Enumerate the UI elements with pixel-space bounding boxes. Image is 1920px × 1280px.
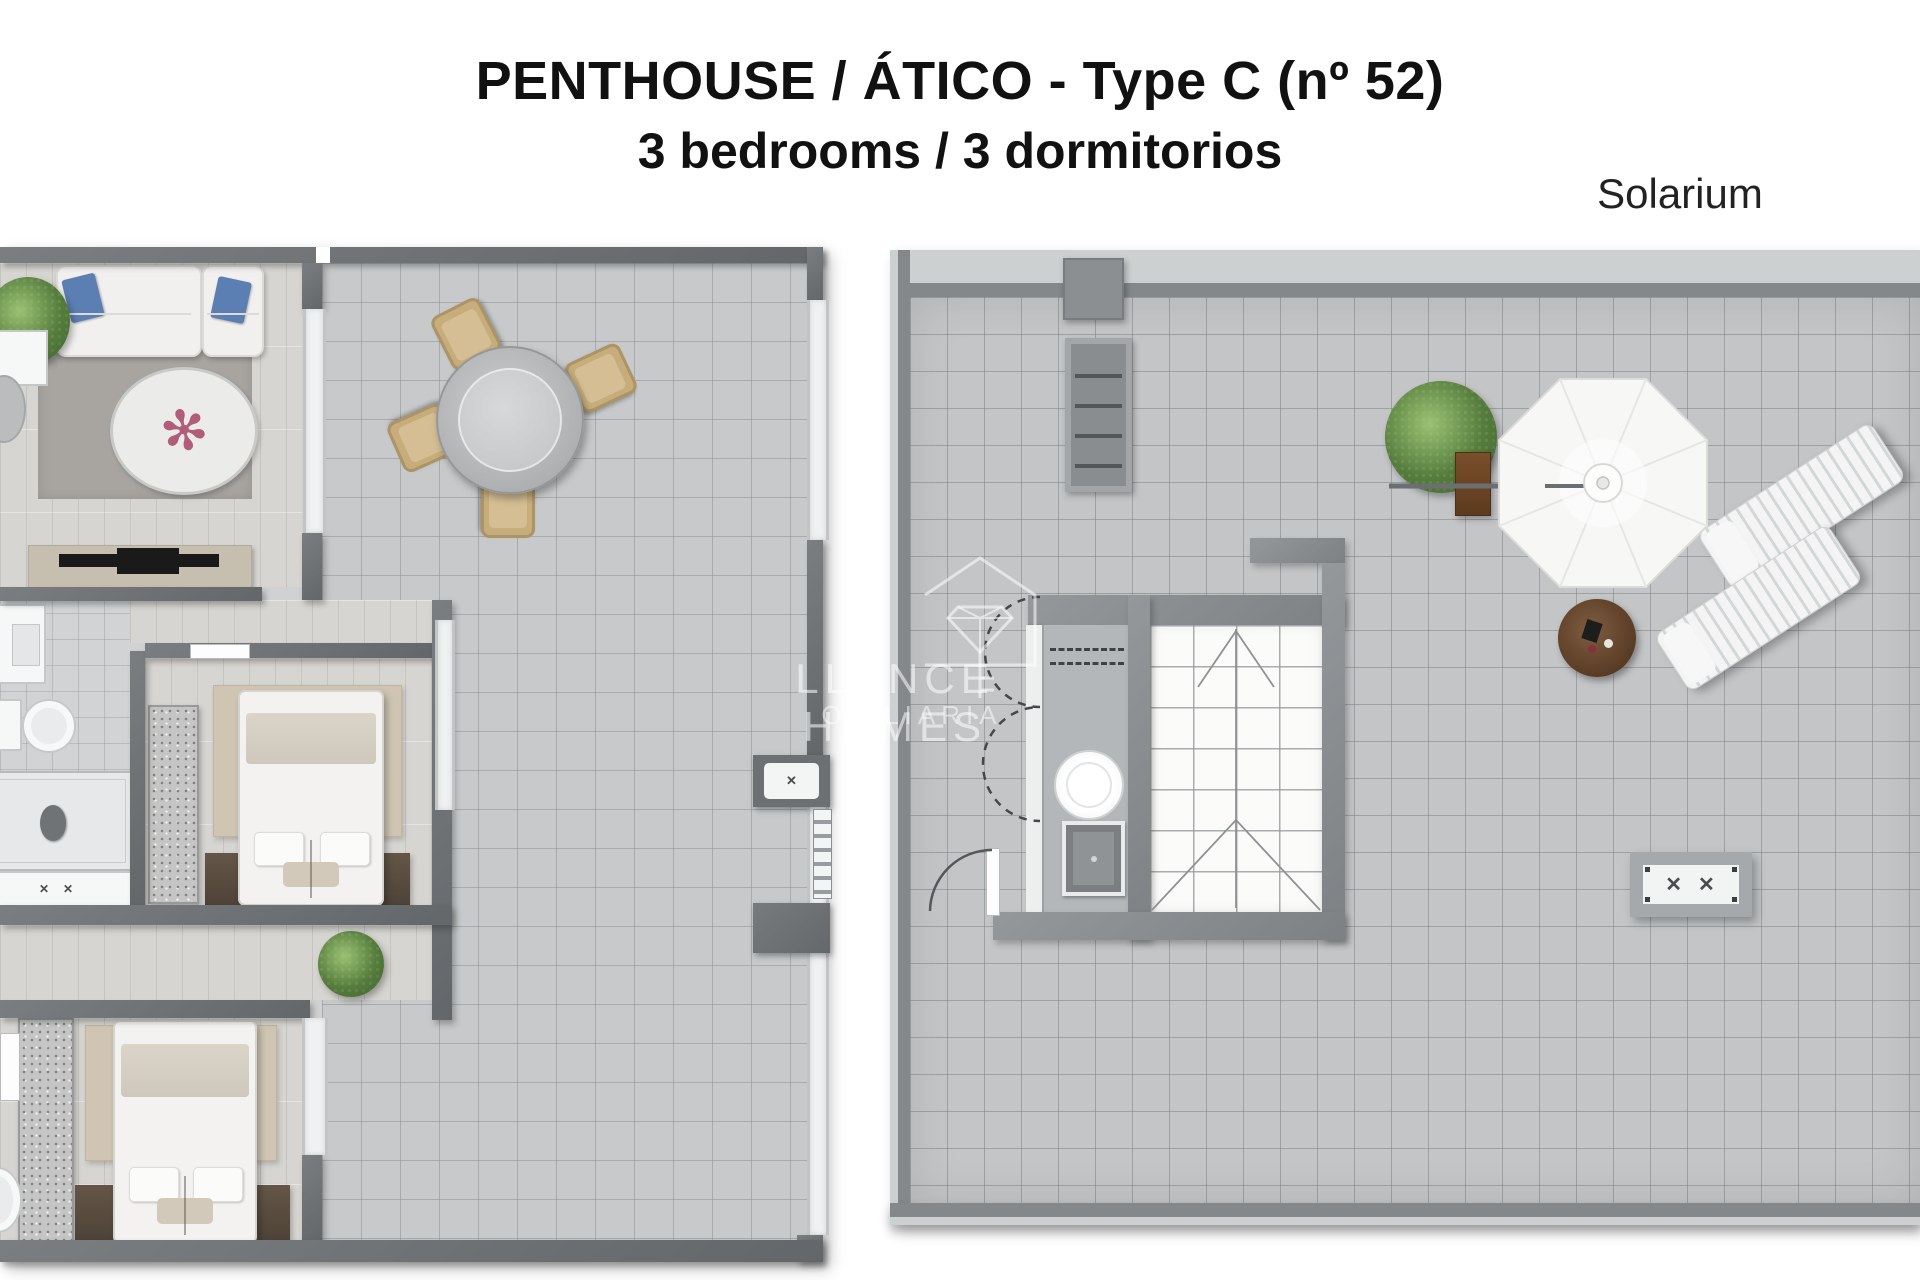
wall-divider-top bbox=[302, 263, 322, 309]
page-title: PENTHOUSE / ÁTICO - Type C (nº 52) bbox=[0, 50, 1920, 112]
wall-bedroom2-right bbox=[302, 1155, 322, 1240]
bedroom2-bed bbox=[113, 1020, 257, 1244]
fold-out-unit: ✕ bbox=[753, 755, 830, 807]
bed-blanket bbox=[246, 713, 377, 764]
bedroom1-window bbox=[435, 620, 455, 810]
solarium-label: Solarium bbox=[1540, 170, 1820, 218]
wall-bathroom bbox=[130, 651, 145, 905]
fitting-x-icon: ✕ bbox=[63, 882, 73, 896]
armchair-cushion-blue bbox=[210, 276, 252, 324]
louver-ladder bbox=[813, 809, 832, 899]
apartment-floorplan: ✻ ✕ ✕ bbox=[0, 247, 823, 1262]
x-mark-icon: ✕ bbox=[786, 773, 797, 789]
bed-pillow bbox=[129, 1167, 179, 1202]
parasol bbox=[1389, 379, 1707, 587]
wall-living-bottom bbox=[0, 587, 262, 601]
fold-out-unit-top: ✕ bbox=[764, 763, 819, 799]
wall-right-top bbox=[807, 247, 823, 300]
floorplan-sheet: { "title": { "line1": "PENTHOUSE / ÁTICO… bbox=[0, 0, 1920, 1280]
wall-bedroom2-top bbox=[0, 1000, 310, 1018]
door-swing-arc bbox=[930, 850, 992, 911]
terrace-plant bbox=[318, 931, 384, 997]
watermark-text-2: OBILIARIA bbox=[762, 700, 1062, 731]
living-rug-round: ✻ bbox=[110, 367, 258, 495]
toilet-tank bbox=[0, 699, 22, 751]
table-inner bbox=[458, 368, 562, 472]
utility-block bbox=[753, 903, 830, 953]
bed-crease bbox=[184, 1176, 186, 1235]
bed-blanket bbox=[121, 1044, 250, 1097]
shower-column bbox=[40, 805, 66, 841]
fitting-x-icon: ✕ bbox=[39, 882, 49, 896]
flower-motif-icon: ✻ bbox=[154, 398, 214, 464]
wall-bottom bbox=[0, 1240, 823, 1262]
bed-pillow bbox=[254, 832, 304, 866]
parasol-finial bbox=[1597, 477, 1609, 489]
skylight-ridge-lines bbox=[1152, 629, 1320, 910]
wall-opening bbox=[316, 247, 330, 263]
bedroom1-wardrobe bbox=[148, 705, 199, 904]
bathtub: ✕ ✕ bbox=[0, 871, 132, 907]
sink-basin bbox=[12, 624, 40, 666]
wall-bedroom1-top bbox=[145, 643, 432, 658]
bedroom1-door bbox=[190, 644, 250, 659]
living-terrace-window bbox=[303, 309, 326, 533]
tv-console bbox=[117, 548, 179, 574]
sofa bbox=[56, 265, 202, 357]
terrace-window-right-1 bbox=[807, 300, 829, 540]
tv-unit bbox=[28, 545, 252, 591]
armchair bbox=[202, 265, 264, 357]
toilet-icon bbox=[22, 699, 76, 753]
bed-pillow bbox=[193, 1167, 243, 1202]
bed-crease bbox=[310, 840, 312, 897]
terrace-dining-table bbox=[436, 346, 584, 494]
bedroom2-door bbox=[0, 1033, 20, 1101]
bedroom2-window bbox=[302, 1018, 328, 1155]
shower-tray bbox=[0, 771, 134, 871]
hallway-floor bbox=[130, 600, 432, 643]
washbasin-vanity bbox=[0, 604, 46, 684]
sheet-header: PENTHOUSE / ÁTICO - Type C (nº 52) 3 bed… bbox=[0, 50, 1920, 180]
bedroom2-wardrobe bbox=[18, 1018, 74, 1244]
wall-mid bbox=[0, 905, 452, 925]
wall-divider-bottom bbox=[302, 533, 322, 600]
wall-top bbox=[0, 247, 823, 263]
bed-pillow bbox=[320, 832, 370, 866]
bedroom1-bed bbox=[238, 690, 384, 906]
